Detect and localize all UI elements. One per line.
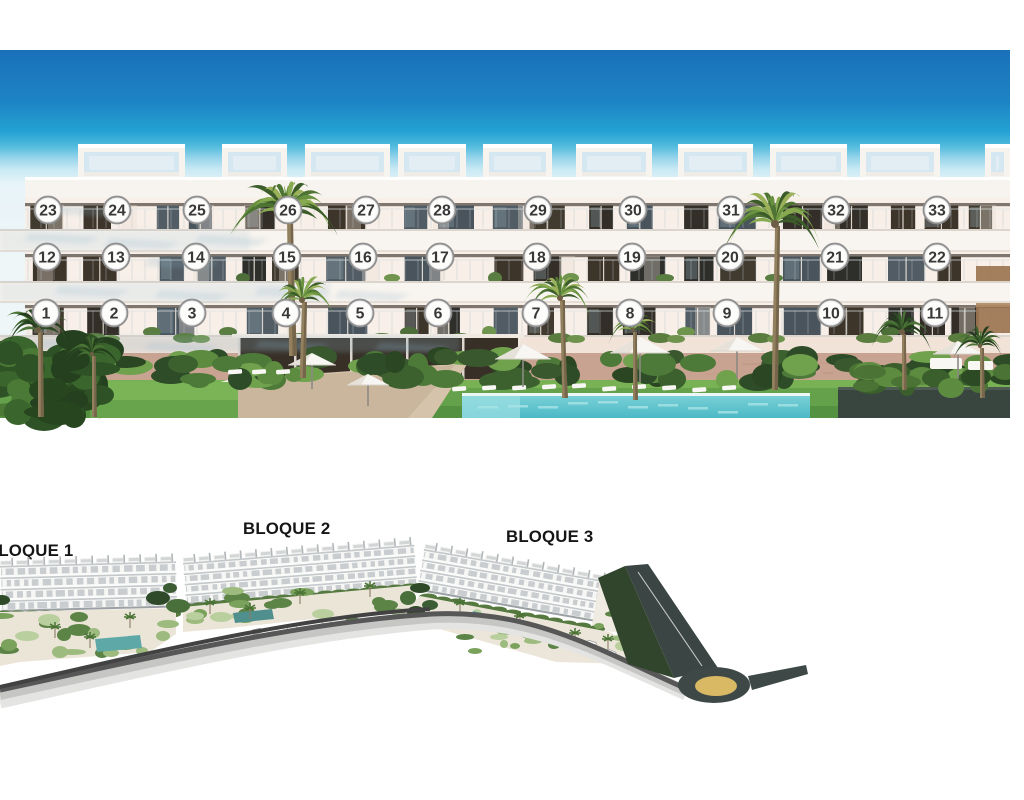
svg-text:22: 22	[928, 250, 946, 267]
svg-text:4: 4	[282, 306, 291, 323]
svg-text:30: 30	[624, 203, 642, 220]
svg-text:12: 12	[38, 250, 56, 267]
svg-text:7: 7	[532, 306, 541, 323]
svg-text:29: 29	[529, 203, 547, 220]
svg-text:14: 14	[187, 250, 205, 267]
svg-text:21: 21	[826, 250, 844, 267]
svg-text:1: 1	[42, 306, 51, 323]
svg-text:9: 9	[723, 306, 732, 323]
svg-text:20: 20	[721, 250, 739, 267]
svg-text:24: 24	[108, 203, 126, 220]
svg-text:11: 11	[927, 306, 944, 323]
svg-text:8: 8	[626, 306, 635, 323]
svg-text:10: 10	[822, 306, 840, 323]
svg-text:BLOQUE 3: BLOQUE 3	[506, 527, 593, 546]
svg-text:19: 19	[623, 250, 641, 267]
svg-text:3: 3	[188, 306, 197, 323]
svg-text:32: 32	[827, 203, 845, 220]
svg-text:18: 18	[528, 250, 546, 267]
svg-text:25: 25	[188, 203, 206, 220]
svg-text:15: 15	[278, 250, 296, 267]
svg-text:28: 28	[433, 203, 451, 220]
svg-text:27: 27	[357, 203, 375, 220]
svg-text:13: 13	[107, 250, 125, 267]
svg-text:5: 5	[356, 306, 365, 323]
svg-text:33: 33	[928, 203, 946, 220]
svg-text:31: 31	[722, 203, 740, 220]
svg-text:26: 26	[279, 203, 297, 220]
svg-text:6: 6	[434, 306, 443, 323]
svg-text:23: 23	[39, 203, 57, 220]
svg-text:17: 17	[431, 250, 449, 267]
svg-text:16: 16	[354, 250, 372, 267]
svg-text:BLOQUE 2: BLOQUE 2	[243, 519, 330, 538]
svg-text:2: 2	[110, 306, 119, 323]
